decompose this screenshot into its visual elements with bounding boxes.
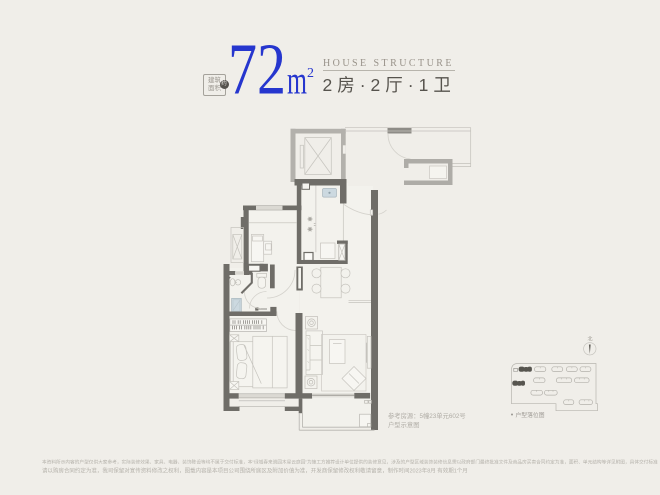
- svg-text:北: 北: [588, 336, 593, 343]
- svg-text:户型落位图: 户型落位图: [516, 411, 545, 419]
